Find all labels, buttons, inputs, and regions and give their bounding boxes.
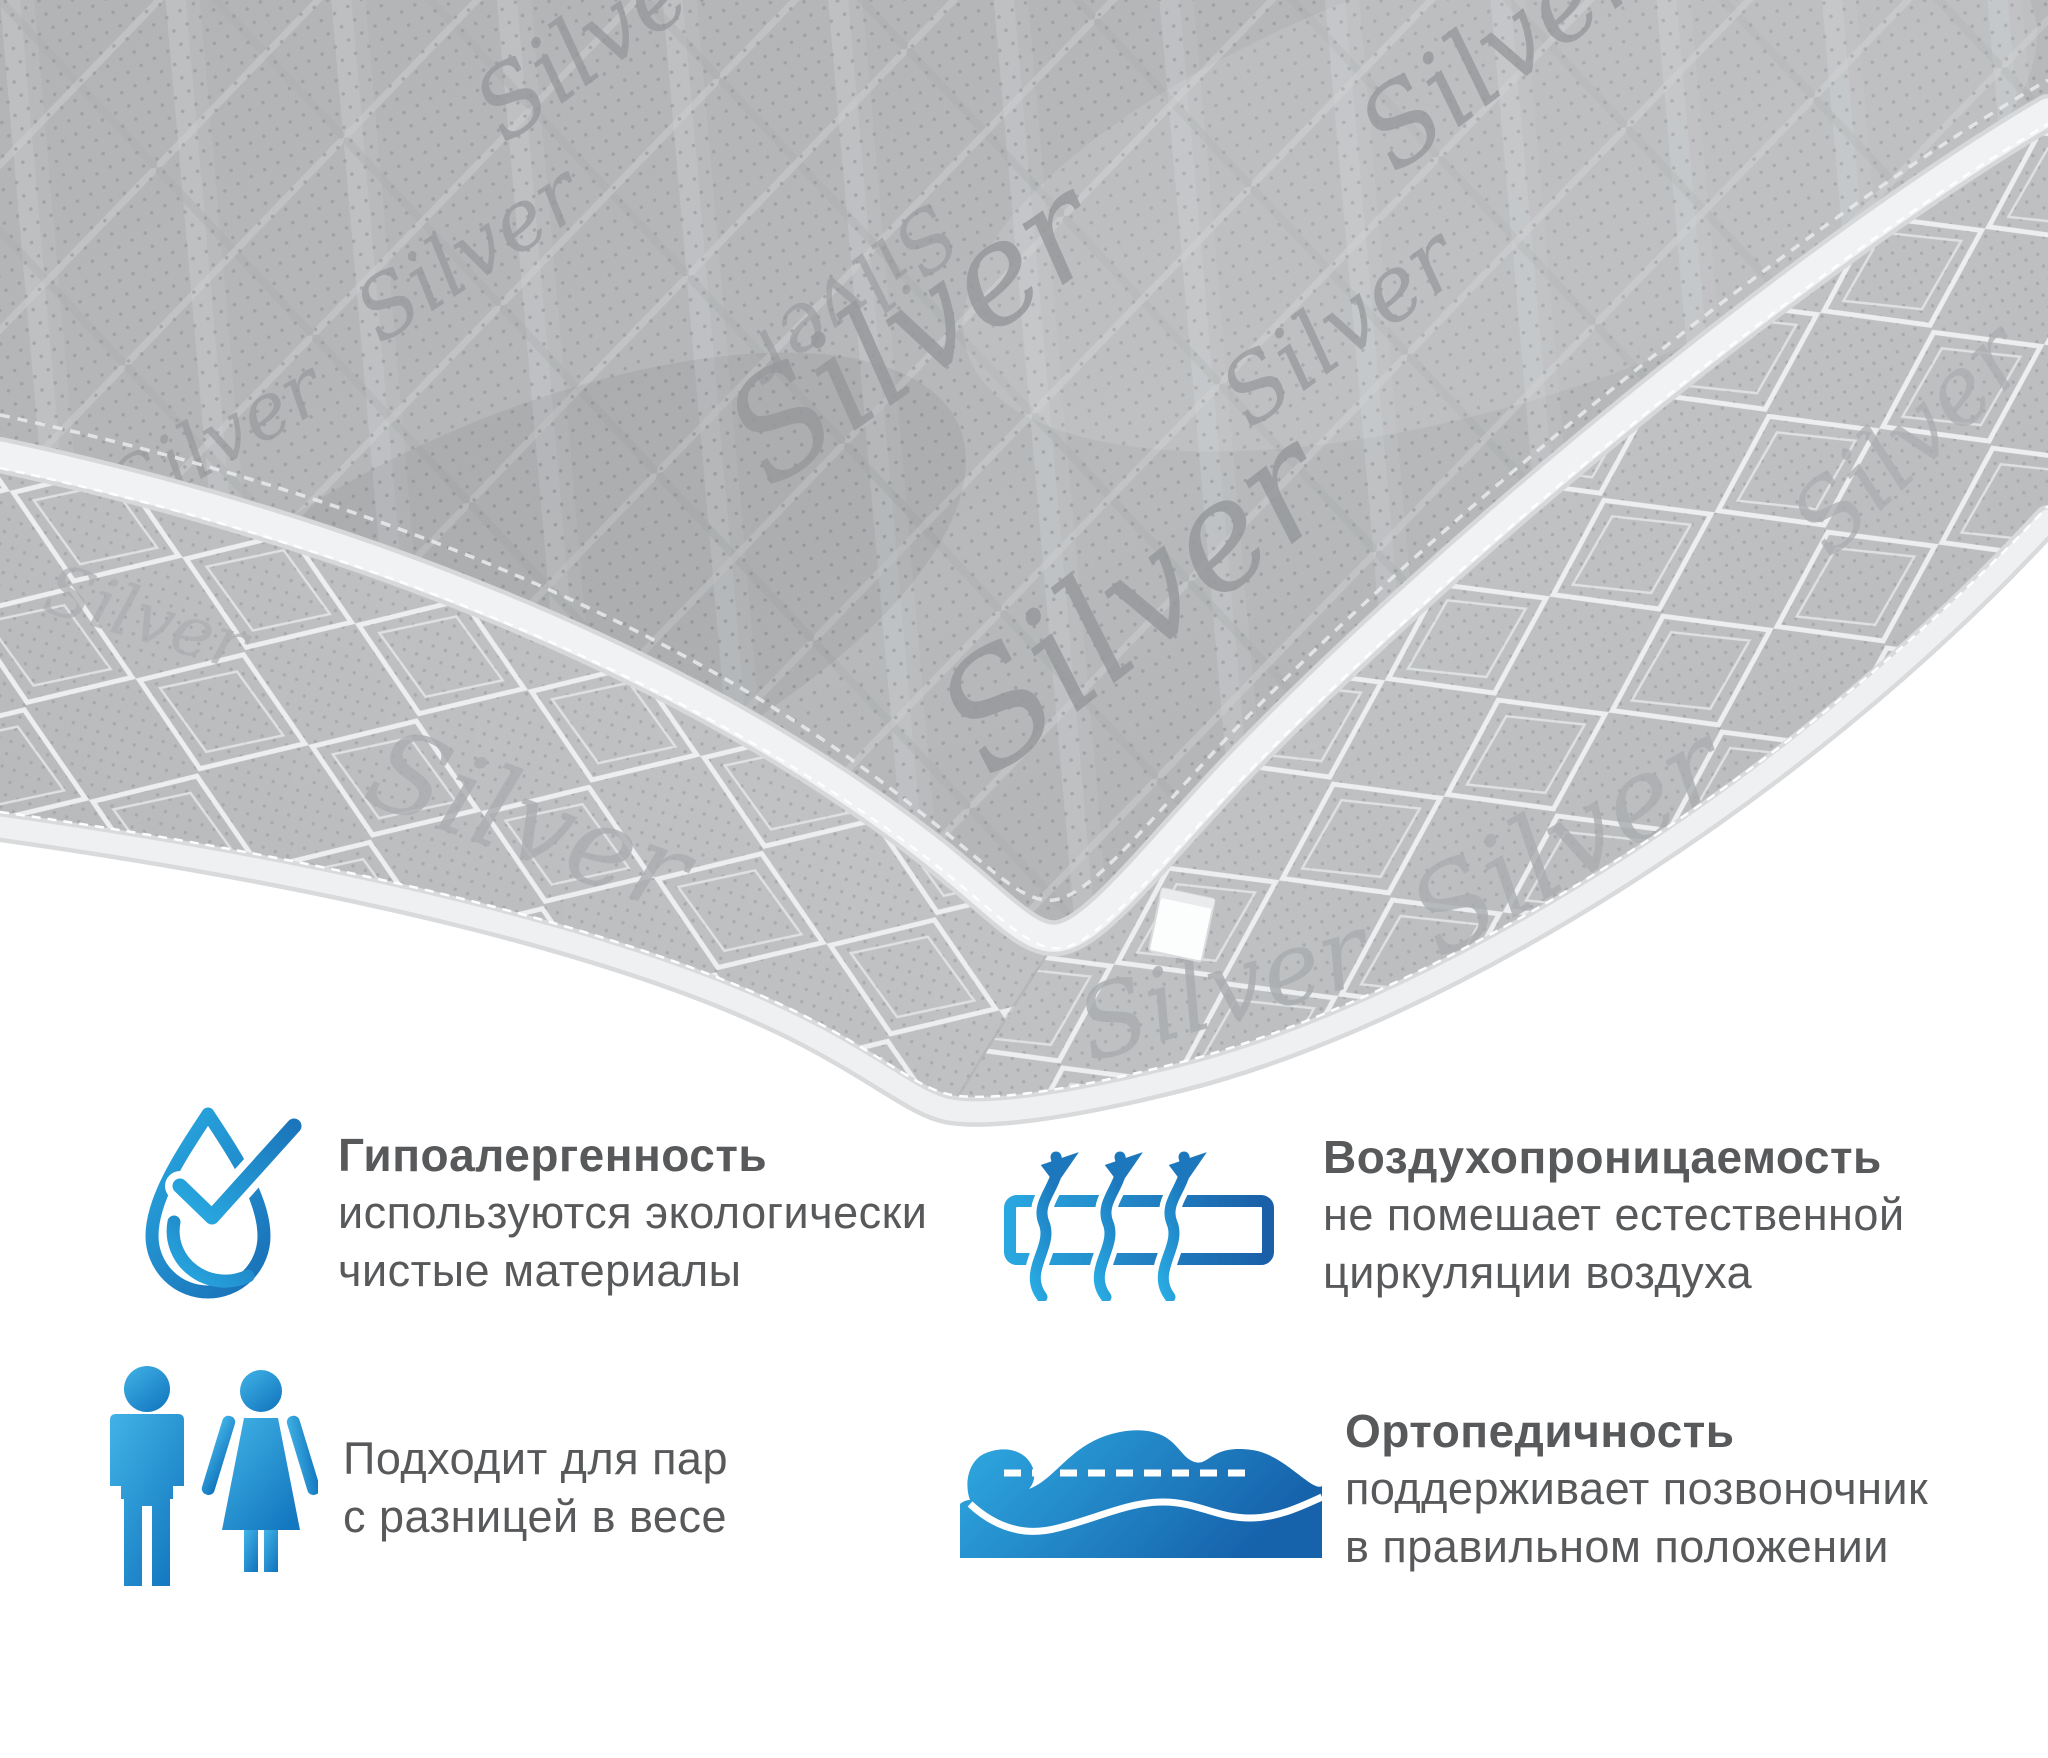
air-arrow [1099,1147,1143,1297]
orthopedic-sleeper-icon [958,1412,1322,1560]
feature-line: используются экологически [338,1184,927,1242]
feature-line: чистые материалы [338,1242,927,1300]
female-figure [200,1370,318,1572]
feature-couples: Подходит для пар с разницей в весе [343,1430,728,1546]
man-woman-icon [98,1364,318,1592]
feature-breathability: Воздухопроницаемость не помешает естеств… [1323,1128,1905,1302]
feature-title: Воздухопроницаемость [1323,1128,1905,1186]
feature-line: циркуляции воздуха [1323,1244,1905,1302]
feature-line: Подходит для пар [343,1430,728,1488]
feature-line: поддерживает позвоночник [1345,1460,1928,1518]
product-infographic: Silver Silver Silver Silver Silver Silve… [0,0,2048,1758]
feature-line: с разницей в весе [343,1488,728,1546]
airflow-arrows-icon [1002,1133,1278,1301]
feature-line: не помешает естественной [1323,1186,1905,1244]
feature-line: в правильном положении [1345,1518,1928,1576]
feature-orthopedic: Ортопедичность поддерживает позвоночник … [1345,1402,1928,1576]
feature-title: Ортопедичность [1345,1402,1928,1460]
air-arrow [1163,1147,1207,1297]
air-arrow [1035,1147,1079,1297]
feature-hypoallergenic: Гипоалергенность используются экологичес… [338,1126,927,1300]
feature-title: Гипоалергенность [338,1126,927,1184]
water-drop-check-icon [136,1104,304,1302]
male-figure [110,1366,184,1586]
